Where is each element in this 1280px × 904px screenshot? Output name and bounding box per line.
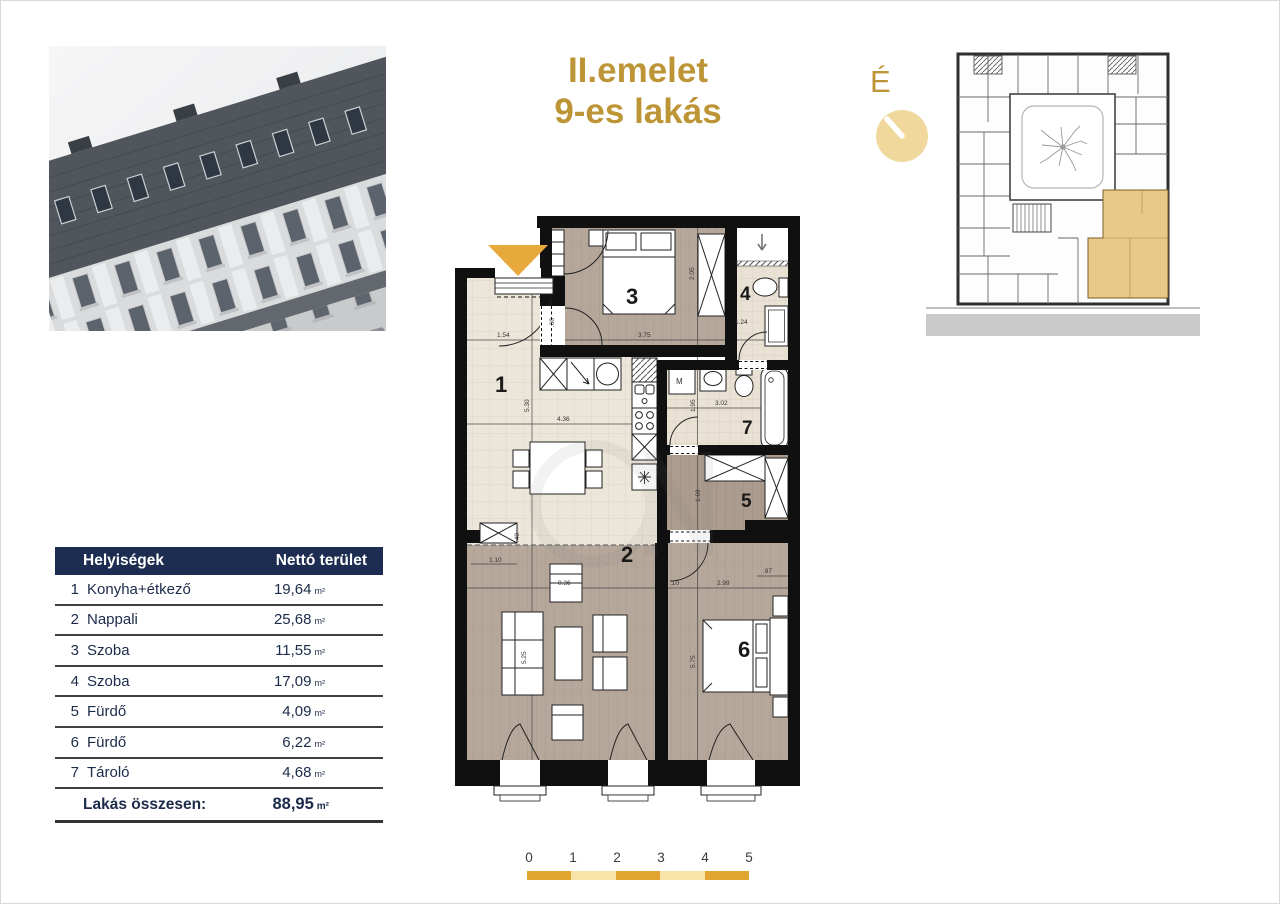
table-row: 3 Szoba 11,55m²: [55, 636, 383, 667]
table-header: Helyiségek Nettó terület: [55, 547, 383, 575]
dim-room6-a: .10: [670, 580, 679, 587]
nightstand: [589, 230, 603, 246]
dim-room7-w: 3.02: [715, 400, 728, 407]
room-label-1: 1: [495, 372, 507, 397]
room-label-2: 2: [621, 542, 633, 567]
row-area: 4,09: [266, 703, 312, 720]
dim-room3-h: 2.05: [689, 267, 696, 280]
dim-room2-b: 0.36: [558, 580, 571, 587]
dim-room2-h: 5.25: [521, 651, 528, 664]
bathtub: [761, 367, 788, 449]
room-label-6: 6: [738, 637, 750, 662]
row-num: 1: [63, 581, 79, 598]
bed-room6: [703, 620, 770, 692]
scale-bar-segments: [527, 871, 749, 880]
dim-room6-h: 5.75: [690, 655, 697, 668]
street-band: [926, 314, 1200, 336]
scale-segment: [571, 871, 615, 880]
row-num: 5: [63, 703, 79, 720]
building-photo: [49, 46, 386, 331]
room-label-7: 7: [742, 418, 753, 439]
row-area: 17,09: [266, 673, 312, 690]
dim-room3-w: 3.75: [638, 332, 651, 339]
table-row: 1 Konyha+étkező 19,64m²: [55, 575, 383, 606]
dim-room6-b: .97: [763, 568, 772, 575]
floor-plan: 1 2 3 4 5 6 7 M 1.54 .60 3.75 2.05 1.24 …: [455, 212, 815, 812]
row-num: 3: [63, 642, 79, 659]
row-unit: m²: [315, 647, 326, 657]
scale-segment: [660, 871, 704, 880]
scale-bar: 0 1 2 3 4 5: [527, 850, 749, 884]
north-letter: É: [870, 64, 891, 100]
toilet-room4: [753, 278, 788, 297]
row-unit: m²: [315, 616, 326, 626]
row-num: 6: [63, 734, 79, 751]
row-unit: m²: [315, 586, 326, 596]
nightstand-6b: [773, 697, 788, 717]
title-line2: 9-es lakás: [458, 91, 818, 132]
washbasin-room4: [765, 306, 788, 346]
row-area: 25,68: [266, 611, 312, 628]
row-name: Fürdő: [87, 734, 126, 751]
dim-room2-a: 1.10: [489, 557, 502, 564]
scale-tick: 0: [525, 850, 533, 865]
row-area: 19,64: [266, 581, 312, 598]
north-needle: [887, 119, 902, 136]
room-label-5: 5: [741, 491, 752, 512]
toilet-room7: [735, 367, 753, 397]
wardrobe-room3: [698, 234, 725, 316]
scale-tick: 3: [657, 850, 665, 865]
page-title: II.emelet 9-es lakás: [458, 50, 818, 132]
header-col-rooms: Helyiségek: [83, 552, 164, 570]
table-row: 7 Tároló 4,68m²: [55, 759, 383, 790]
total-unit: m²: [317, 801, 329, 812]
areas-table: Helyiségek Nettó terület 1 Konyha+étkező…: [55, 547, 383, 823]
stove: [632, 408, 657, 434]
headboard: [770, 618, 788, 695]
row-area: 11,55: [266, 642, 312, 659]
row-num: 2: [63, 611, 79, 628]
washing-machine-label: M: [676, 377, 683, 386]
scale-tick: 1: [569, 850, 577, 865]
scale-segment: [616, 871, 660, 880]
scale-tick: 4: [701, 850, 709, 865]
row-name: Fürdő: [87, 703, 126, 720]
armchair-2: [593, 657, 627, 690]
total-label: Lakás összesen:: [83, 796, 206, 814]
side-table-bottom: [552, 705, 583, 740]
scale-tick: 2: [613, 850, 621, 865]
dim-40: .40: [514, 533, 521, 542]
dim-kitchen-h: 5.30: [524, 399, 531, 412]
row-num: 7: [63, 764, 79, 781]
header-col-area: Nettó terület: [276, 552, 367, 570]
table-total-row: Lakás összesen: 88,95m²: [55, 789, 383, 823]
row-area: 4,68: [266, 764, 312, 781]
building-photo-art: [49, 46, 386, 331]
row-unit: m²: [315, 769, 326, 779]
dim-room7-h: 1.95: [690, 399, 697, 412]
total-area: 88,95: [264, 795, 314, 814]
site-key-plan: [918, 42, 1208, 342]
armchair-1: [593, 615, 627, 652]
scale-segment: [527, 871, 571, 880]
dim-kitchen-w: 4.36: [557, 416, 570, 423]
room-label-4: 4: [740, 284, 751, 305]
room-label-3: 3: [626, 284, 638, 309]
row-unit: m²: [315, 708, 326, 718]
radiator-cabinet: [480, 523, 517, 543]
table-row: 2 Nappali 25,68m²: [55, 606, 383, 637]
dim-entry: 1.54: [497, 332, 510, 339]
row-name: Szoba: [87, 673, 130, 690]
dim-room4: 1.24: [735, 319, 748, 326]
row-num: 4: [63, 673, 79, 690]
row-name: Nappali: [87, 611, 138, 628]
table-row: 6 Fürdő 6,22m²: [55, 728, 383, 759]
row-unit: m²: [315, 678, 326, 688]
shaft-divider: [737, 261, 788, 266]
table-row: 4 Szoba 17,09m²: [55, 667, 383, 698]
coffee-table: [555, 627, 582, 680]
row-name: Konyha+étkező: [87, 581, 191, 598]
dim-room6-w: 2.99: [717, 580, 730, 587]
table-row: 5 Fürdő 4,09m²: [55, 697, 383, 728]
bed-room3: [603, 230, 675, 314]
dim-room5: 1.69: [695, 489, 702, 502]
row-name: Tároló: [87, 764, 130, 781]
row-area: 6,22: [266, 734, 312, 751]
nightstand-6a: [773, 596, 788, 616]
dim-vest: .60: [549, 318, 556, 327]
scale-segment: [705, 871, 749, 880]
row-unit: m²: [315, 739, 326, 749]
stairwell: [1013, 204, 1051, 232]
title-line1: II.emelet: [458, 50, 818, 91]
scale-tick: 5: [745, 850, 753, 865]
sink: [632, 382, 657, 408]
row-name: Szoba: [87, 642, 130, 659]
